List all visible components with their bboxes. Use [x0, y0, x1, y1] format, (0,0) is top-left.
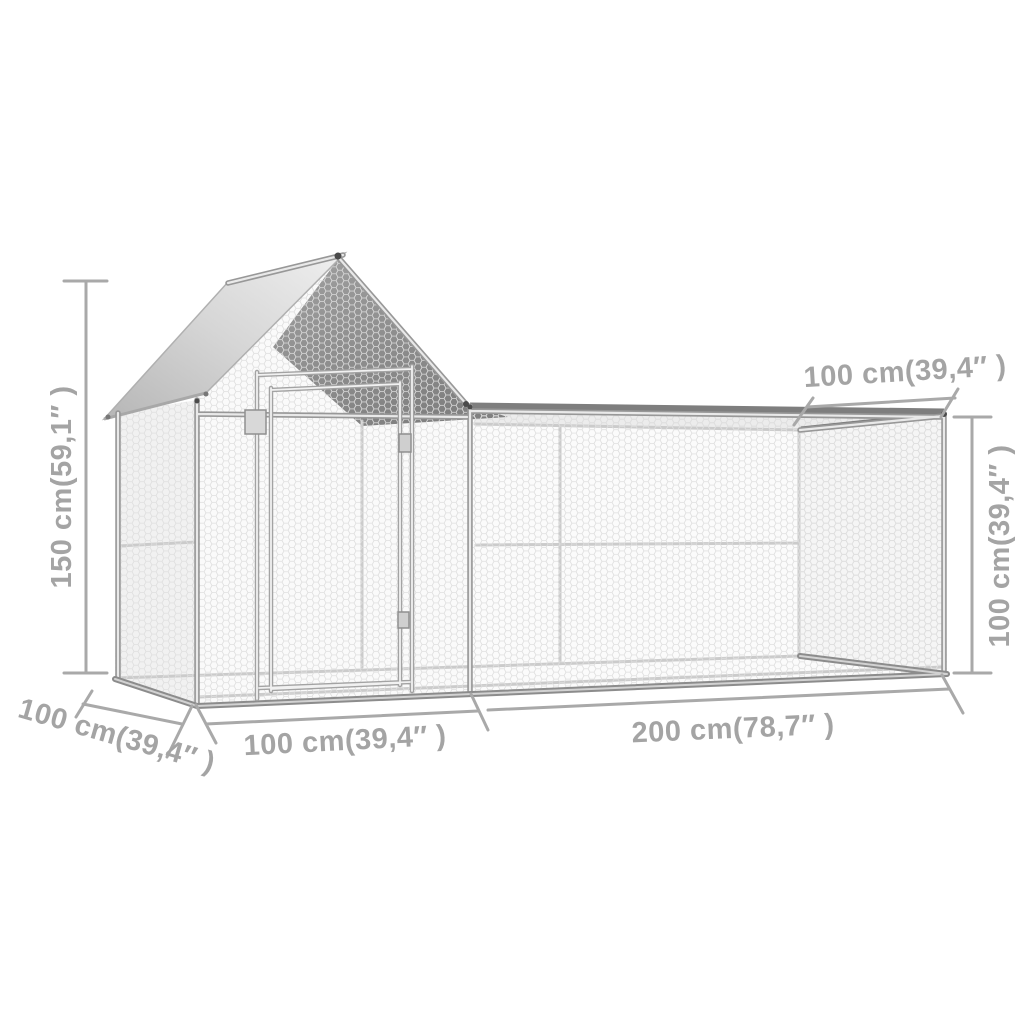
dim-run-height: 100 cm(39,4″ )	[954, 417, 1016, 673]
dim-run-depth-label: 100 cm(39,4″ )	[803, 350, 1008, 394]
door-latch-top	[399, 434, 411, 452]
dim-coop-width-label: 100 cm(39,4″ )	[243, 720, 447, 763]
door-latch-bottom	[398, 612, 409, 628]
dim-run-length-label: 200 cm(78,7″ )	[631, 709, 835, 750]
door-hinge	[245, 410, 266, 434]
coop-dimension-diagram: 150 cm(59,1″ ) 100 cm(39,4″ ) 100 cm(39,…	[0, 0, 1024, 1024]
dim-run-height-label: 100 cm(39,4″ )	[984, 444, 1016, 647]
dim-total-height-label: 150 cm(59,1″ )	[46, 385, 78, 588]
dim-total-height: 150 cm(59,1″ )	[46, 281, 107, 673]
diagram-canvas: 150 cm(59,1″ ) 100 cm(39,4″ ) 100 cm(39,…	[0, 0, 1024, 1024]
